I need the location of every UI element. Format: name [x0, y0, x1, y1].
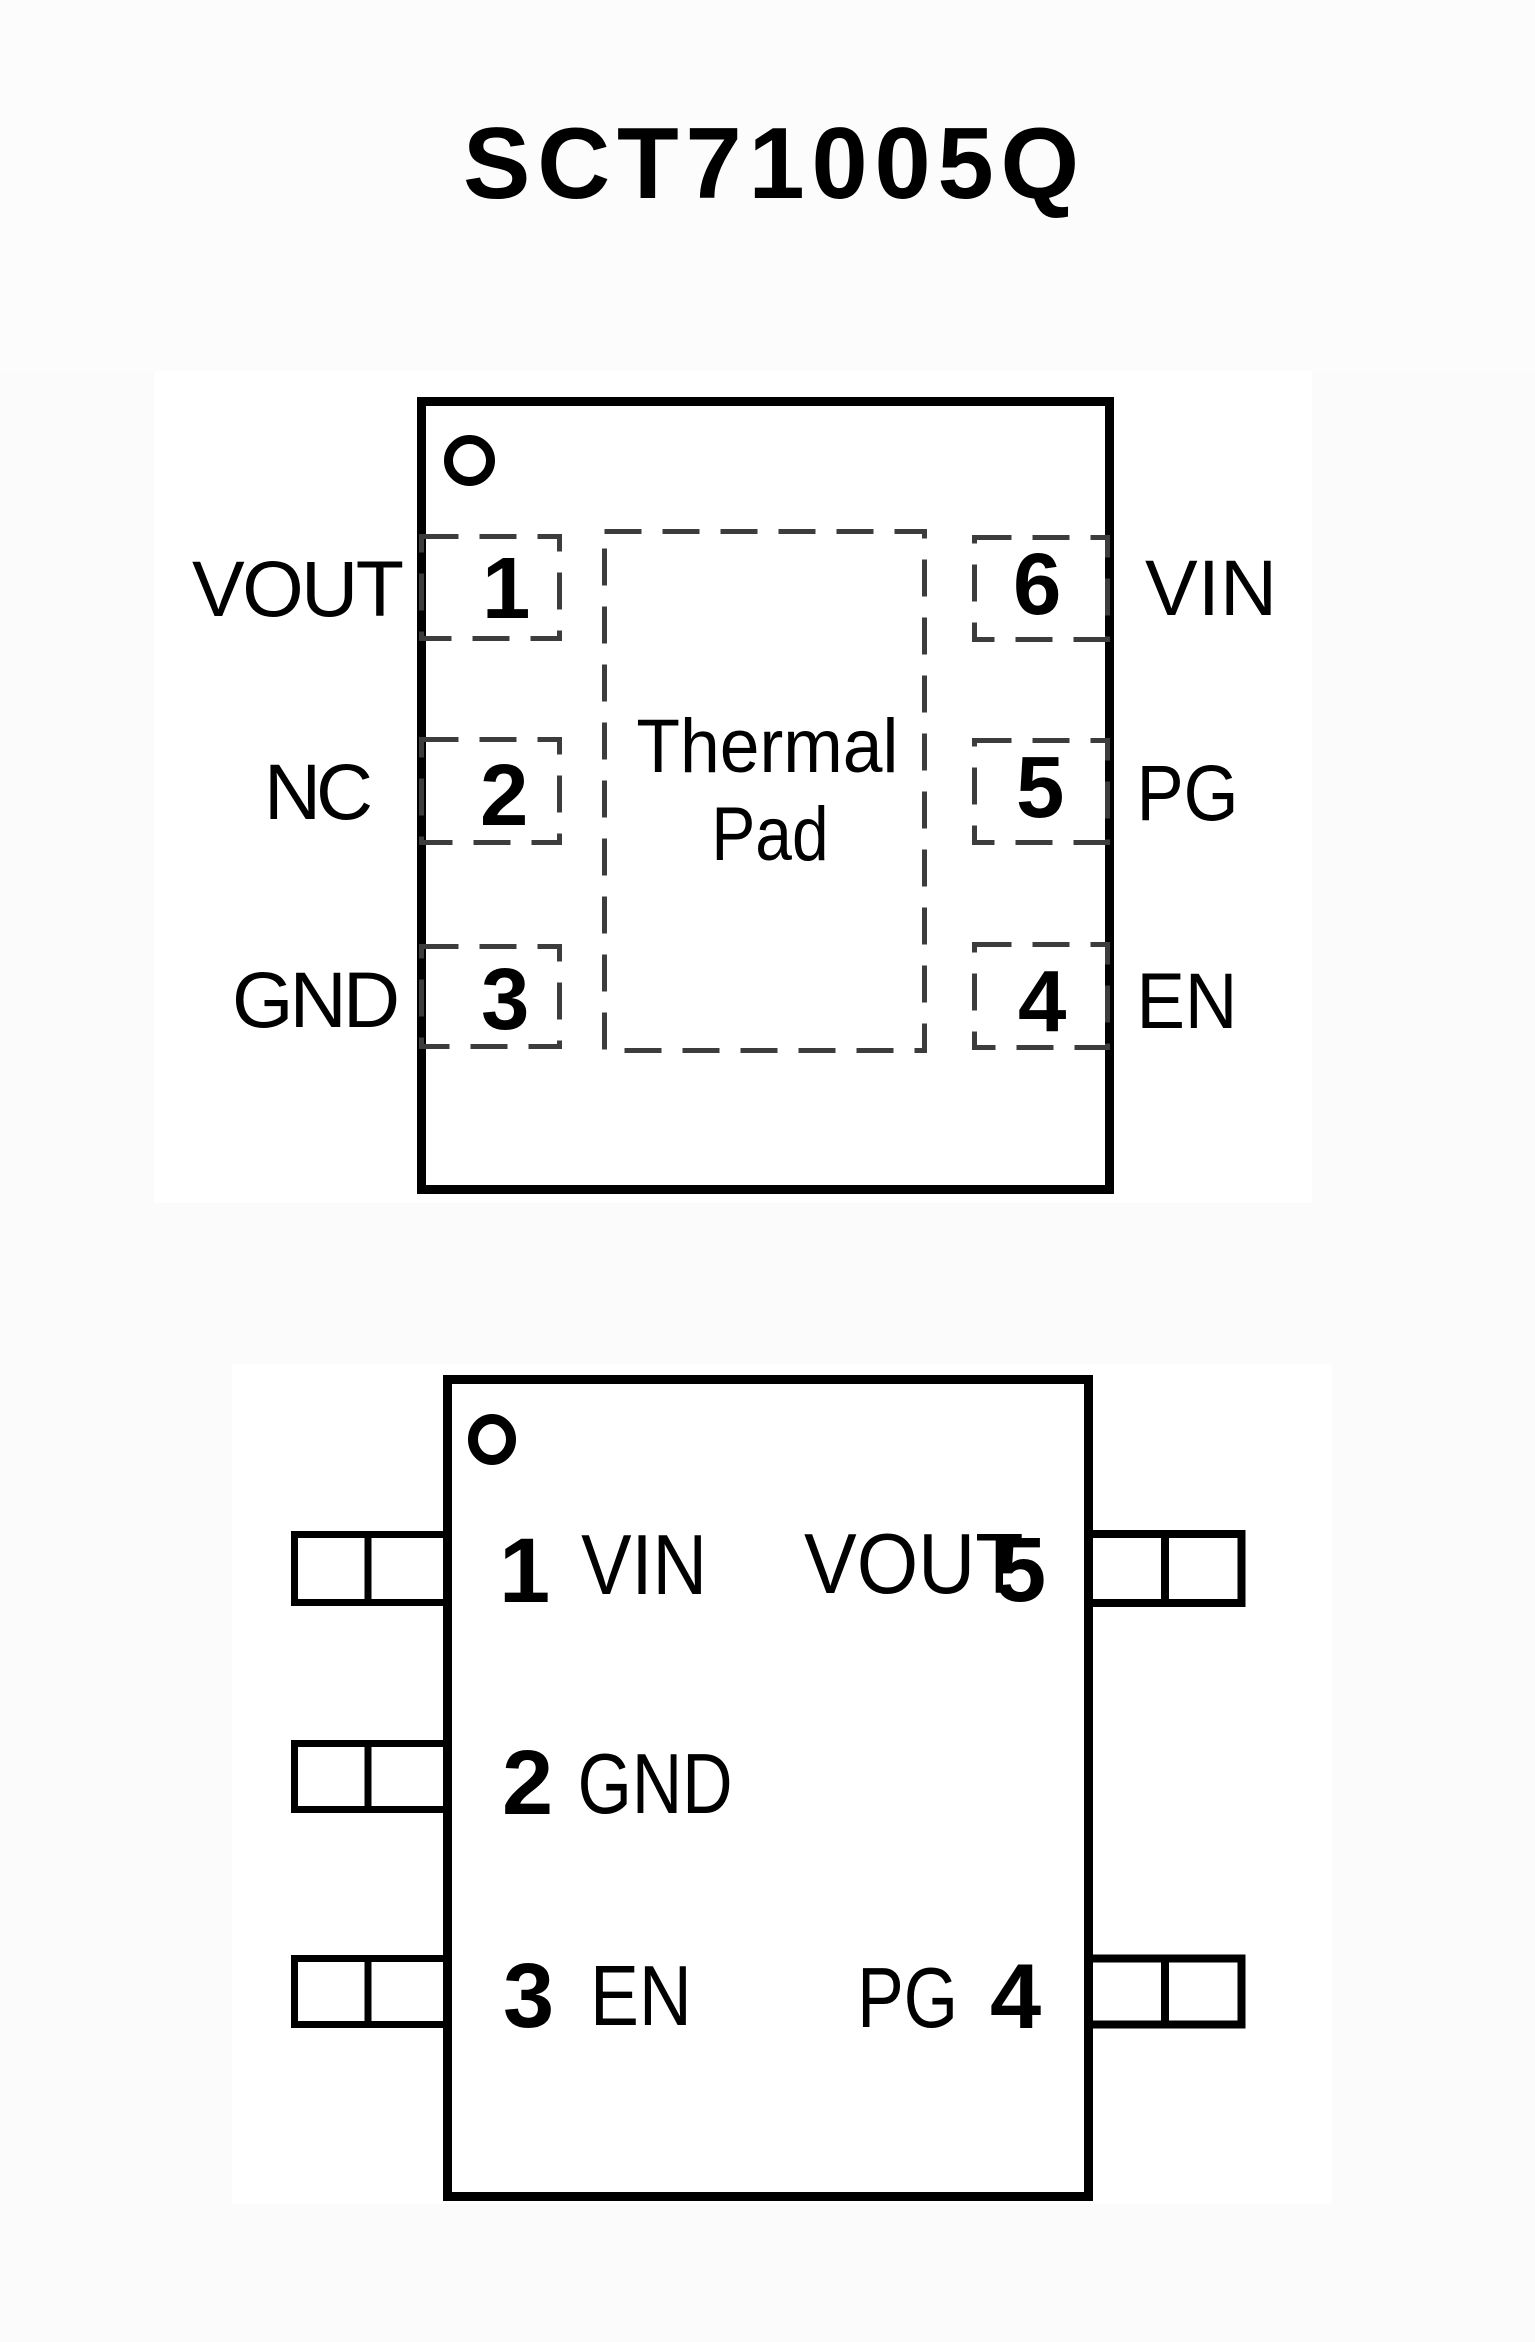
svg-text:EN: EN — [1136, 957, 1237, 1045]
svg-text:3: 3 — [481, 951, 529, 1048]
svg-text:NC: NC — [264, 747, 373, 836]
svg-text:2: 2 — [480, 747, 528, 844]
svg-text:4: 4 — [1018, 953, 1066, 1050]
svg-text:4: 4 — [990, 1946, 1041, 2048]
svg-text:VOUT: VOUT — [804, 1517, 1024, 1611]
svg-text:1: 1 — [482, 540, 530, 637]
svg-text:5: 5 — [1016, 739, 1064, 836]
svg-text:5: 5 — [995, 1519, 1046, 1621]
svg-text:GND: GND — [578, 1738, 733, 1832]
svg-text:VOUT: VOUT — [192, 544, 404, 633]
svg-text:Thermal: Thermal — [636, 703, 898, 789]
svg-text:VIN: VIN — [581, 1518, 707, 1613]
svg-text:SCT71005Q: SCT71005Q — [463, 108, 1079, 220]
svg-text:PG: PG — [857, 1952, 958, 2046]
svg-text:PG: PG — [1137, 748, 1239, 837]
svg-text:6: 6 — [1013, 536, 1061, 633]
svg-text:GND: GND — [232, 955, 400, 1044]
svg-text:1: 1 — [499, 1520, 550, 1622]
svg-text:VIN: VIN — [1145, 543, 1277, 632]
svg-text:2: 2 — [502, 1732, 553, 1834]
svg-text:3: 3 — [503, 1945, 554, 2047]
svg-text:EN: EN — [590, 1948, 692, 2043]
svg-text:Pad: Pad — [711, 793, 828, 877]
